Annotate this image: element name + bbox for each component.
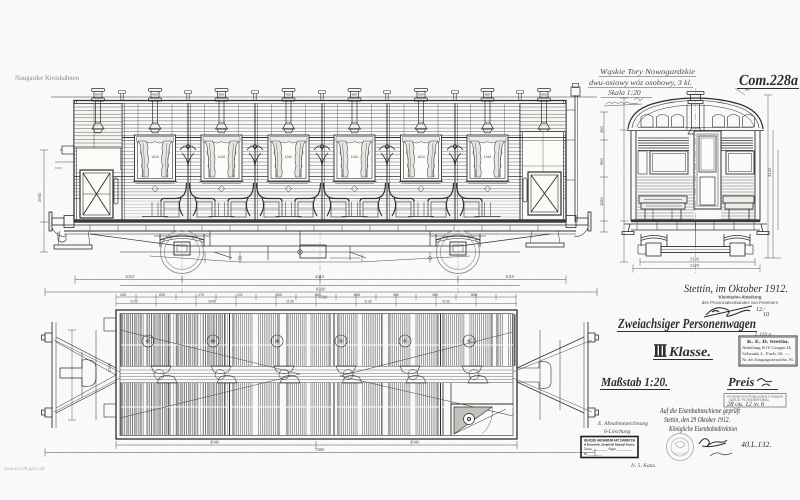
svg-text:dwu-osiowy wóz osobowy, 3 kl.: dwu-osiowy wóz osobowy, 3 kl. xyxy=(589,78,692,87)
svg-text:Stettin, den 29 Oktober 1912.: Stettin, den 29 Oktober 1912. xyxy=(664,415,730,424)
svg-text:Maßstab 1:20.: Maßstab 1:20. xyxy=(600,375,668,389)
svg-text:1040: 1040 xyxy=(208,300,216,304)
svg-text:Skala 1:20: Skala 1:20 xyxy=(608,88,641,97)
svg-text:Nr________: Nr________ xyxy=(584,452,602,456)
svg-text:3120: 3120 xyxy=(767,167,772,177)
svg-text:450: 450 xyxy=(599,126,604,133)
svg-text:808: 808 xyxy=(471,293,477,297)
svg-text:Klasse.: Klasse. xyxy=(668,344,711,359)
svg-text:Naugarder Kreisbahnen: Naugarder Kreisbahnen xyxy=(15,74,79,82)
svg-text:Com.228a: Com.228a xyxy=(739,72,798,89)
svg-text:950: 950 xyxy=(599,158,604,165)
svg-text:1130: 1130 xyxy=(442,300,450,304)
svg-text:311: 311 xyxy=(237,293,243,297)
svg-text:660: 660 xyxy=(352,93,358,97)
svg-text:4310: 4310 xyxy=(315,274,325,279)
svg-text:Königliche Eisenbahndirektion: Königliche Eisenbahndirektion xyxy=(668,424,737,433)
svg-text:660: 660 xyxy=(95,93,101,97)
svg-text:Zesp.________ Sygn._____: Zesp.________ Sygn.________ xyxy=(584,447,632,451)
svg-text:des Provinzialverbandes von Po: des Provinzialverbandes von Pommern xyxy=(702,300,779,305)
svg-text:1010: 1010 xyxy=(484,155,492,159)
svg-text:E. Abnahmezeichnung: E. Abnahmezeichnung xyxy=(597,421,648,427)
svg-text:565: 565 xyxy=(315,293,321,297)
svg-text:1010: 1010 xyxy=(125,274,135,279)
svg-text:www.bci-38.gov.l dd: www.bci-38.gov.l dd xyxy=(4,466,45,471)
svg-text:3040: 3040 xyxy=(210,440,220,445)
svg-text:2560: 2560 xyxy=(37,192,42,202)
svg-text:1010: 1010 xyxy=(218,155,226,159)
svg-text:Kleinbahn-Abteilung: Kleinbahn-Abteilung xyxy=(719,295,762,300)
svg-text:Auf die Eisenbahnschiene geprü: Auf die Eisenbahnschiene geprüft xyxy=(659,406,740,415)
svg-text:3040: 3040 xyxy=(410,440,420,445)
svg-text:N. 5. Kaus.: N. 5. Kaus. xyxy=(630,463,656,469)
svg-text:6-Löschung: 6-Löschung xyxy=(604,429,631,435)
svg-text:1010: 1010 xyxy=(417,155,425,159)
svg-text:660: 660 xyxy=(418,93,424,97)
svg-text:1130: 1130 xyxy=(130,300,138,304)
svg-text:808: 808 xyxy=(354,293,360,297)
svg-text:40.L.132.: 40.L.132. xyxy=(741,440,771,449)
svg-text:2100: 2100 xyxy=(690,257,700,262)
svg-text:565: 565 xyxy=(276,293,282,297)
svg-text:L 110 a: L 110 a xyxy=(754,332,772,338)
svg-text:2200: 2200 xyxy=(107,362,112,372)
svg-text:1010: 1010 xyxy=(151,155,159,159)
svg-text:1130: 1130 xyxy=(286,300,294,304)
svg-text:450: 450 xyxy=(120,293,126,297)
svg-text:w Szczecinie. Zespół akt R: w Szczecinie. Zespół akt Rejencji Szczec… xyxy=(583,443,635,447)
svg-text:660: 660 xyxy=(219,93,225,97)
svg-text:660: 660 xyxy=(286,93,292,97)
svg-text:Wąskie Tory Nowogardzkie: Wąskie Tory Nowogardzkie xyxy=(600,67,696,76)
svg-text:660: 660 xyxy=(541,93,547,97)
svg-text:660: 660 xyxy=(485,93,491,97)
svg-text:2470: 2470 xyxy=(690,263,700,268)
svg-text:1130: 1130 xyxy=(364,300,372,304)
svg-text:Schrank L. Fach 26. —: Schrank L. Fach 26. — xyxy=(742,351,791,356)
svg-text:10: 10 xyxy=(763,312,769,318)
svg-text:Nr. des Eingangsverzeichn. 95.: Nr. des Eingangsverzeichn. 95. xyxy=(742,357,794,362)
svg-text:Abteilung B IV Gruppe IX.: Abteilung B IV Gruppe IX. xyxy=(742,345,792,350)
svg-text:660: 660 xyxy=(152,93,158,97)
svg-text:1160: 1160 xyxy=(599,197,604,206)
svg-text:1010: 1010 xyxy=(351,155,359,159)
svg-text:Stettin, im Oktober 1912.: Stettin, im Oktober 1912. xyxy=(684,283,788,295)
svg-text:Zweiachsiger Personenwagen: Zweiachsiger Personenwagen xyxy=(617,317,756,332)
svg-text:450: 450 xyxy=(432,293,438,297)
svg-text:565: 565 xyxy=(393,293,399,297)
svg-text:1010: 1010 xyxy=(285,155,293,159)
svg-text:1010: 1010 xyxy=(505,274,515,279)
svg-text:7360: 7360 xyxy=(315,447,325,452)
svg-text:176: 176 xyxy=(198,293,204,297)
svg-text:Preis: Preis xyxy=(728,375,755,389)
svg-text:6330: 6330 xyxy=(316,287,326,292)
svg-text:830: 830 xyxy=(159,293,165,297)
